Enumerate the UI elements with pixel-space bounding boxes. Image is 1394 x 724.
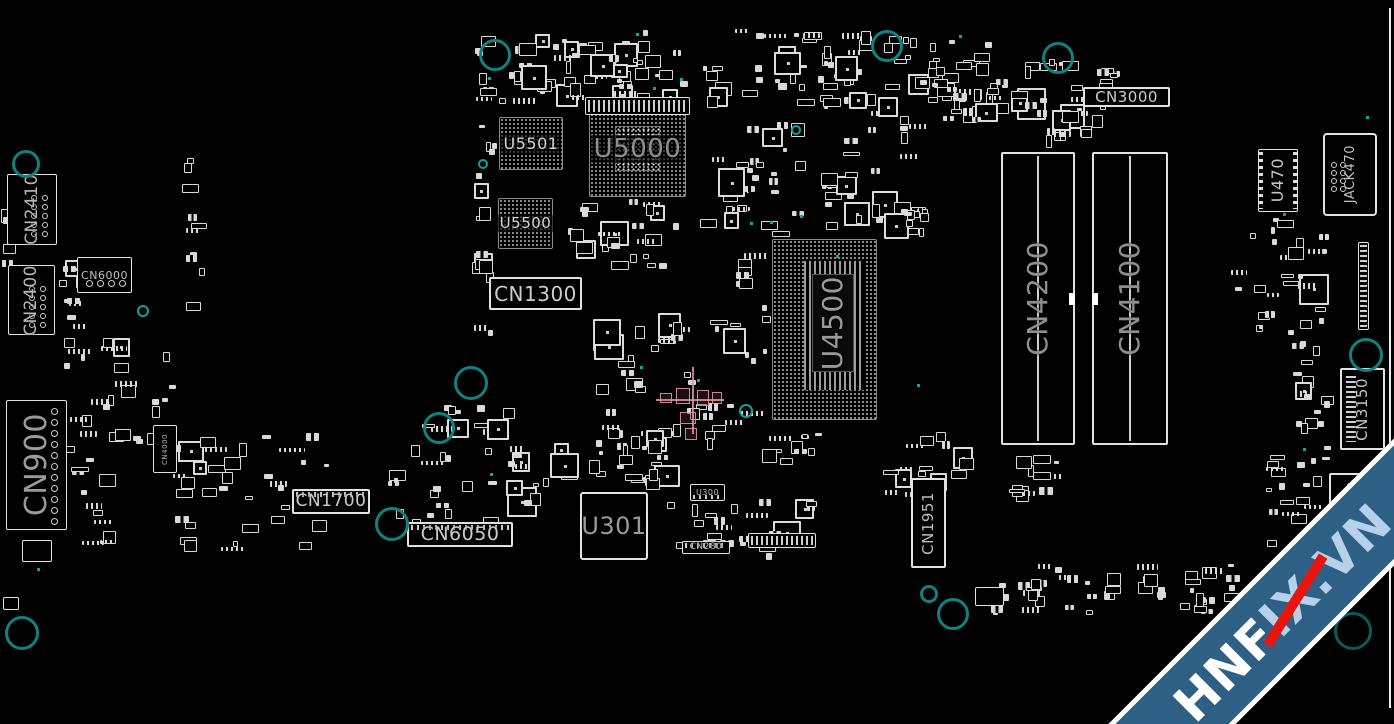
clutter-part [262, 435, 270, 439]
clutter-part [910, 38, 917, 48]
clutter-part [715, 326, 719, 332]
clutter-part [849, 92, 867, 109]
clutter-part [411, 445, 420, 457]
clutter-part [487, 419, 509, 440]
clutter-part [80, 431, 96, 437]
clutter-part [81, 354, 85, 361]
component-U4500[interactable]: U4500 [772, 239, 877, 420]
clutter-part [1033, 455, 1050, 463]
clutter-part [193, 461, 207, 475]
clutter-part [974, 89, 981, 102]
clutter-part [772, 231, 790, 237]
clutter-part [694, 520, 704, 527]
slot-notch [1092, 293, 1098, 305]
qfn-center-dot [542, 40, 545, 43]
clutter-part [611, 243, 620, 249]
qfn-center-dot [606, 331, 609, 334]
qfn-center-dot [566, 95, 569, 98]
clutter-part [245, 496, 253, 500]
clutter-part [436, 503, 449, 509]
clutter-part [86, 503, 102, 509]
component-CN1300[interactable]: CN1300 [489, 277, 582, 310]
via-dot [697, 379, 700, 382]
pin-comb [1360, 245, 1367, 327]
clutter-part [186, 255, 197, 262]
clutter-part [797, 99, 815, 106]
clutter-part [1266, 488, 1272, 492]
mounting-hole [871, 30, 903, 62]
clutter-part [1322, 457, 1330, 461]
clutter-part [649, 469, 658, 481]
component-U301[interactable]: U301 [580, 492, 648, 560]
via-dot [653, 87, 656, 90]
clutter-part [871, 168, 880, 174]
clutter-part [1272, 239, 1277, 245]
component-label: CN2410 [24, 174, 41, 245]
clutter-part [673, 322, 681, 336]
component-U5501[interactable]: U5501 [499, 117, 563, 170]
qfn-center-dot [903, 478, 906, 481]
clutter-part [1319, 318, 1324, 324]
qfn-center-dot [666, 475, 669, 478]
clutter-part [1037, 110, 1047, 117]
clutter-part [836, 176, 857, 194]
clutter-part [176, 489, 193, 498]
clutter-part [756, 162, 764, 168]
clutter-part [716, 525, 733, 530]
connector-part[interactable] [1358, 242, 1369, 330]
clutter-part [64, 338, 75, 348]
clutter-part [1298, 283, 1316, 288]
component-label: JACK470 [1344, 145, 1357, 203]
component-CN6000[interactable]: CN6000 [77, 257, 132, 293]
clutter-part [1269, 509, 1278, 515]
clutter-part [657, 455, 667, 460]
clutter-part [219, 486, 227, 491]
qfn-center-dot [571, 48, 574, 51]
clutter-part [184, 163, 192, 172]
clutter-part [1297, 462, 1305, 468]
clutter-part [562, 39, 567, 44]
clutter-part [3, 244, 16, 254]
clutter-part [974, 53, 990, 62]
clutter-part [752, 175, 759, 181]
clutter-part [1299, 274, 1329, 305]
clutter-part [445, 509, 453, 519]
component-CN2410[interactable]: CN2410 [7, 174, 57, 245]
clutter-part [1033, 472, 1051, 481]
clutter-part [1314, 410, 1320, 414]
clutter-part [703, 66, 707, 71]
clutter-part [1280, 500, 1294, 505]
clutter-part [725, 420, 743, 426]
clutter-part [823, 98, 841, 107]
clutter-part [602, 425, 621, 431]
clutter-part [205, 447, 227, 452]
component-label: CN900 [22, 413, 52, 516]
via-dot [1366, 116, 1369, 119]
clutter-part [959, 458, 974, 471]
clutter-part [553, 44, 559, 51]
clutter-part [673, 223, 679, 229]
clutter-part [1267, 293, 1280, 297]
clutter-part [100, 540, 114, 544]
clutter-part [59, 280, 66, 286]
clutter-part [1308, 249, 1323, 254]
clutter-part [1065, 605, 1073, 610]
clutter-part [86, 458, 95, 462]
via-dot [680, 78, 683, 81]
clutter-part [648, 440, 662, 453]
qfn-center-dot [884, 204, 887, 207]
component-CN280[interactable]: CN280 [682, 541, 730, 554]
clutter-part [1104, 594, 1110, 599]
clutter-part [1235, 287, 1241, 292]
component-U5500[interactable]: U5500 [498, 198, 553, 249]
clutter-part [1293, 372, 1302, 376]
clutter-part [1250, 233, 1255, 239]
clutter-part [299, 542, 312, 550]
clutter-part [764, 34, 787, 38]
clutter-part [427, 513, 433, 518]
clutter-part [476, 173, 483, 179]
via-ring [478, 159, 488, 169]
clutter-part [186, 302, 201, 311]
clutter-part [513, 98, 536, 104]
clutter-part [842, 33, 860, 39]
clutter-part [1097, 69, 1109, 76]
qfn-center-dot [669, 324, 672, 327]
component-CN3150[interactable]: CN3150 [1340, 368, 1385, 450]
clutter-part [239, 443, 247, 457]
clutter-part [1288, 247, 1304, 260]
clutter-part [173, 474, 186, 479]
pin-comb [588, 100, 687, 112]
clutter-part [724, 212, 739, 228]
clutter-part [1196, 593, 1204, 606]
clutter-part [224, 457, 240, 469]
clutter-part [94, 520, 112, 525]
clutter-part [824, 46, 831, 60]
clutter-part [1267, 540, 1277, 546]
clutter-part [718, 168, 745, 197]
clutter-part [1011, 91, 1028, 98]
clutter-part [997, 103, 1009, 114]
clutter-part [188, 214, 196, 221]
highlighted-part[interactable] [697, 390, 709, 406]
component-CN1700[interactable]: CN1700 [292, 489, 370, 514]
clutter-part [622, 41, 630, 46]
component-U300[interactable]: U300 [690, 484, 725, 501]
highlighted-part[interactable] [685, 428, 697, 440]
clutter-part [421, 461, 444, 466]
clutter-part [949, 40, 955, 44]
clutter-part [744, 186, 754, 192]
clutter-part [769, 436, 793, 441]
component-CN2400[interactable]: CN2400 [8, 265, 55, 335]
clutter-part [769, 178, 778, 185]
mounting-hole [479, 39, 511, 71]
component-CN4000[interactable]: CN4000 [153, 425, 177, 473]
clutter-part [1085, 581, 1091, 585]
clutter-part [643, 254, 649, 259]
clutter-part [883, 470, 899, 475]
clutter-part [735, 29, 749, 33]
slot-notch [1069, 293, 1075, 305]
clutter-part [533, 483, 539, 487]
clutter-part [736, 162, 749, 167]
pin-hole [51, 518, 58, 525]
clutter-part [619, 84, 632, 90]
clutter-part [933, 58, 940, 63]
clutter-part [659, 70, 673, 80]
pin-hole [1331, 162, 1337, 168]
clutter-part [901, 209, 908, 213]
clutter-part [763, 349, 767, 354]
connector-part[interactable] [3, 597, 19, 610]
clutter-part [1092, 115, 1103, 128]
clutter-part [508, 461, 515, 467]
component-U470[interactable]: U470 [1258, 149, 1298, 212]
clutter-part [876, 217, 883, 223]
via-ring [137, 305, 149, 317]
pin-hole [1331, 170, 1337, 176]
qfn-center-dot [846, 68, 849, 71]
clutter-part [942, 96, 952, 100]
component-label: CN3150 [1355, 378, 1370, 441]
pin-hole [1331, 178, 1337, 184]
component-CN4100[interactable]: CN4100 [1092, 152, 1168, 445]
clutter-part [279, 448, 305, 452]
clutter-part [808, 448, 814, 455]
pin-comb [751, 536, 813, 545]
clutter-part [1028, 590, 1037, 600]
clutter-part [1038, 564, 1052, 569]
clutter-part [1046, 135, 1052, 148]
clutter-part [806, 501, 817, 507]
component-label: CN4100 [1116, 241, 1144, 356]
clutter-part [81, 490, 87, 495]
clutter-part [909, 124, 927, 129]
clutter-part [976, 63, 989, 76]
clutter-part [762, 316, 771, 324]
clutter-part [633, 58, 638, 63]
clutter-part [221, 547, 245, 552]
clutter-part [1288, 330, 1293, 335]
highlighted-part[interactable] [660, 393, 672, 403]
component-CN3000[interactable]: CN3000 [1083, 87, 1170, 107]
board-canvas[interactable]: CN2410CN2400CN6000CN900CN4000U5501U5000U… [0, 0, 1394, 724]
component-CN6050[interactable]: CN6050 [407, 522, 513, 547]
clutter-part [99, 474, 116, 487]
via-dot [959, 35, 962, 38]
clutter-part [1025, 66, 1032, 79]
watermark-text-blue: IX.VN [1248, 493, 1394, 648]
clutter-part [747, 168, 754, 174]
clutter-part [625, 474, 643, 482]
pin-hole [42, 231, 48, 237]
clutter-part [1087, 594, 1096, 600]
clutter-part [64, 299, 71, 303]
clutter-part [271, 516, 285, 524]
clutter-part [184, 540, 196, 552]
clutter-part [845, 172, 858, 178]
clutter-part [635, 68, 648, 81]
clutter-part [856, 215, 862, 225]
mounting-hole [1042, 42, 1074, 74]
clutter-part [756, 77, 763, 83]
clutter-part [462, 481, 473, 492]
connector-part[interactable] [585, 97, 690, 115]
clutter-part [645, 55, 661, 68]
clutter-part [191, 223, 207, 230]
clutter-part [673, 424, 681, 437]
clutter-part [766, 553, 772, 559]
clutter-part [843, 152, 860, 156]
mounting-hole [454, 366, 488, 400]
clutter-part [1157, 592, 1166, 599]
qfn-center-dot [1019, 102, 1022, 105]
component-label: U5501 [501, 135, 562, 153]
watermark-banner: HNFIX.VN [1096, 426, 1394, 724]
component-JACK470[interactable]: JACK470 [1323, 133, 1377, 216]
component-label: CN1951 [921, 492, 936, 555]
clutter-part [780, 458, 793, 465]
clutter-part [659, 263, 667, 269]
highlighted-part[interactable] [712, 392, 722, 404]
via-dot [750, 222, 753, 225]
clutter-part [169, 385, 176, 389]
clutter-part [136, 439, 143, 444]
clutter-part [1055, 567, 1063, 573]
clutter-part [103, 404, 110, 410]
clutter-part [1300, 341, 1306, 347]
clutter-part [778, 83, 787, 90]
clutter-part [1311, 458, 1316, 464]
connector-part[interactable] [748, 533, 816, 548]
clutter-part [479, 260, 493, 274]
clutter-part [1054, 461, 1058, 464]
via-dot [1303, 448, 1306, 451]
clutter-part [759, 499, 771, 506]
component-CN900[interactable]: CN900 [6, 400, 67, 530]
clutter-part [642, 446, 647, 450]
clutter-part [844, 138, 858, 143]
clutter-part [619, 455, 633, 465]
clutter-part [152, 399, 159, 405]
clutter-part [996, 79, 1008, 86]
clutter-part [1301, 360, 1313, 366]
clutter-part [1060, 132, 1065, 137]
clutter-part [920, 436, 934, 446]
clutter-part [606, 409, 616, 416]
clutter-part [1315, 307, 1326, 312]
clutter-part [455, 410, 461, 414]
qfn-center-dot [895, 225, 898, 228]
pin-hole [42, 204, 48, 210]
clutter-part [844, 80, 851, 86]
qfn-center-dot [656, 212, 659, 215]
clutter-part [474, 183, 489, 199]
qfn-center-dot [857, 99, 860, 102]
pin-hole [1331, 186, 1337, 192]
clutter-part [1313, 476, 1322, 487]
clutter-part [477, 405, 485, 412]
clutter-part [707, 438, 713, 450]
clutter-part [847, 193, 854, 199]
clutter-part [181, 477, 196, 489]
mounting-hole [5, 616, 39, 650]
clutter-part [928, 97, 939, 103]
clutter-part [635, 326, 645, 339]
clutter-part [630, 254, 637, 263]
clutter-part [632, 223, 644, 229]
clutter-part [1313, 346, 1320, 356]
component-label: CN2400 [23, 265, 40, 336]
clutter-part [783, 148, 787, 151]
clutter-part [647, 263, 656, 268]
clutter-part [488, 481, 497, 485]
clutter-part [930, 43, 937, 52]
component-CN1951[interactable]: CN1951 [911, 478, 946, 568]
clutter-part [1144, 574, 1158, 586]
clutter-part [596, 384, 609, 395]
clutter-part [1300, 320, 1311, 330]
connector-part[interactable] [22, 540, 52, 562]
clutter-part [306, 433, 319, 441]
connector-part[interactable] [975, 587, 1004, 606]
clutter-part [684, 372, 691, 378]
clutter-part [312, 520, 327, 532]
clutter-part [1271, 227, 1276, 234]
clutter-part [730, 323, 741, 327]
clutter-part [885, 490, 899, 495]
clutter-part [746, 513, 768, 517]
qfn-center-dot [514, 487, 517, 490]
clutter-part [488, 330, 493, 336]
clutter-part [1009, 489, 1025, 494]
mounting-hole [423, 412, 455, 444]
clutter-part [614, 91, 637, 97]
clutter-part [900, 116, 909, 125]
clutter-part [987, 88, 999, 95]
qfn-center-dot [480, 190, 483, 193]
clutter-part [762, 128, 783, 147]
clutter-part [576, 242, 593, 255]
clutter-part [826, 222, 838, 230]
clutter-part [535, 34, 550, 48]
component-label: U4500 [819, 276, 847, 370]
component-CN4200[interactable]: CN4200 [1001, 152, 1075, 445]
clutter-part [476, 251, 488, 258]
clutter-part [705, 513, 718, 518]
clutter-part [1324, 401, 1330, 408]
clutter-part [894, 59, 907, 64]
via-dot [836, 255, 839, 258]
clutter-part [727, 404, 734, 407]
clutter-part [589, 460, 600, 474]
clutter-part [936, 67, 945, 77]
clutter-part [66, 446, 75, 453]
clutter-part [163, 352, 170, 362]
clutter-part [64, 363, 70, 369]
clutter-part [1110, 73, 1117, 78]
clutter-part [828, 62, 833, 69]
clutter-part [621, 370, 634, 376]
highlighted-part[interactable] [676, 388, 690, 404]
clutter-part [93, 510, 103, 516]
clutter-part [1047, 128, 1055, 134]
